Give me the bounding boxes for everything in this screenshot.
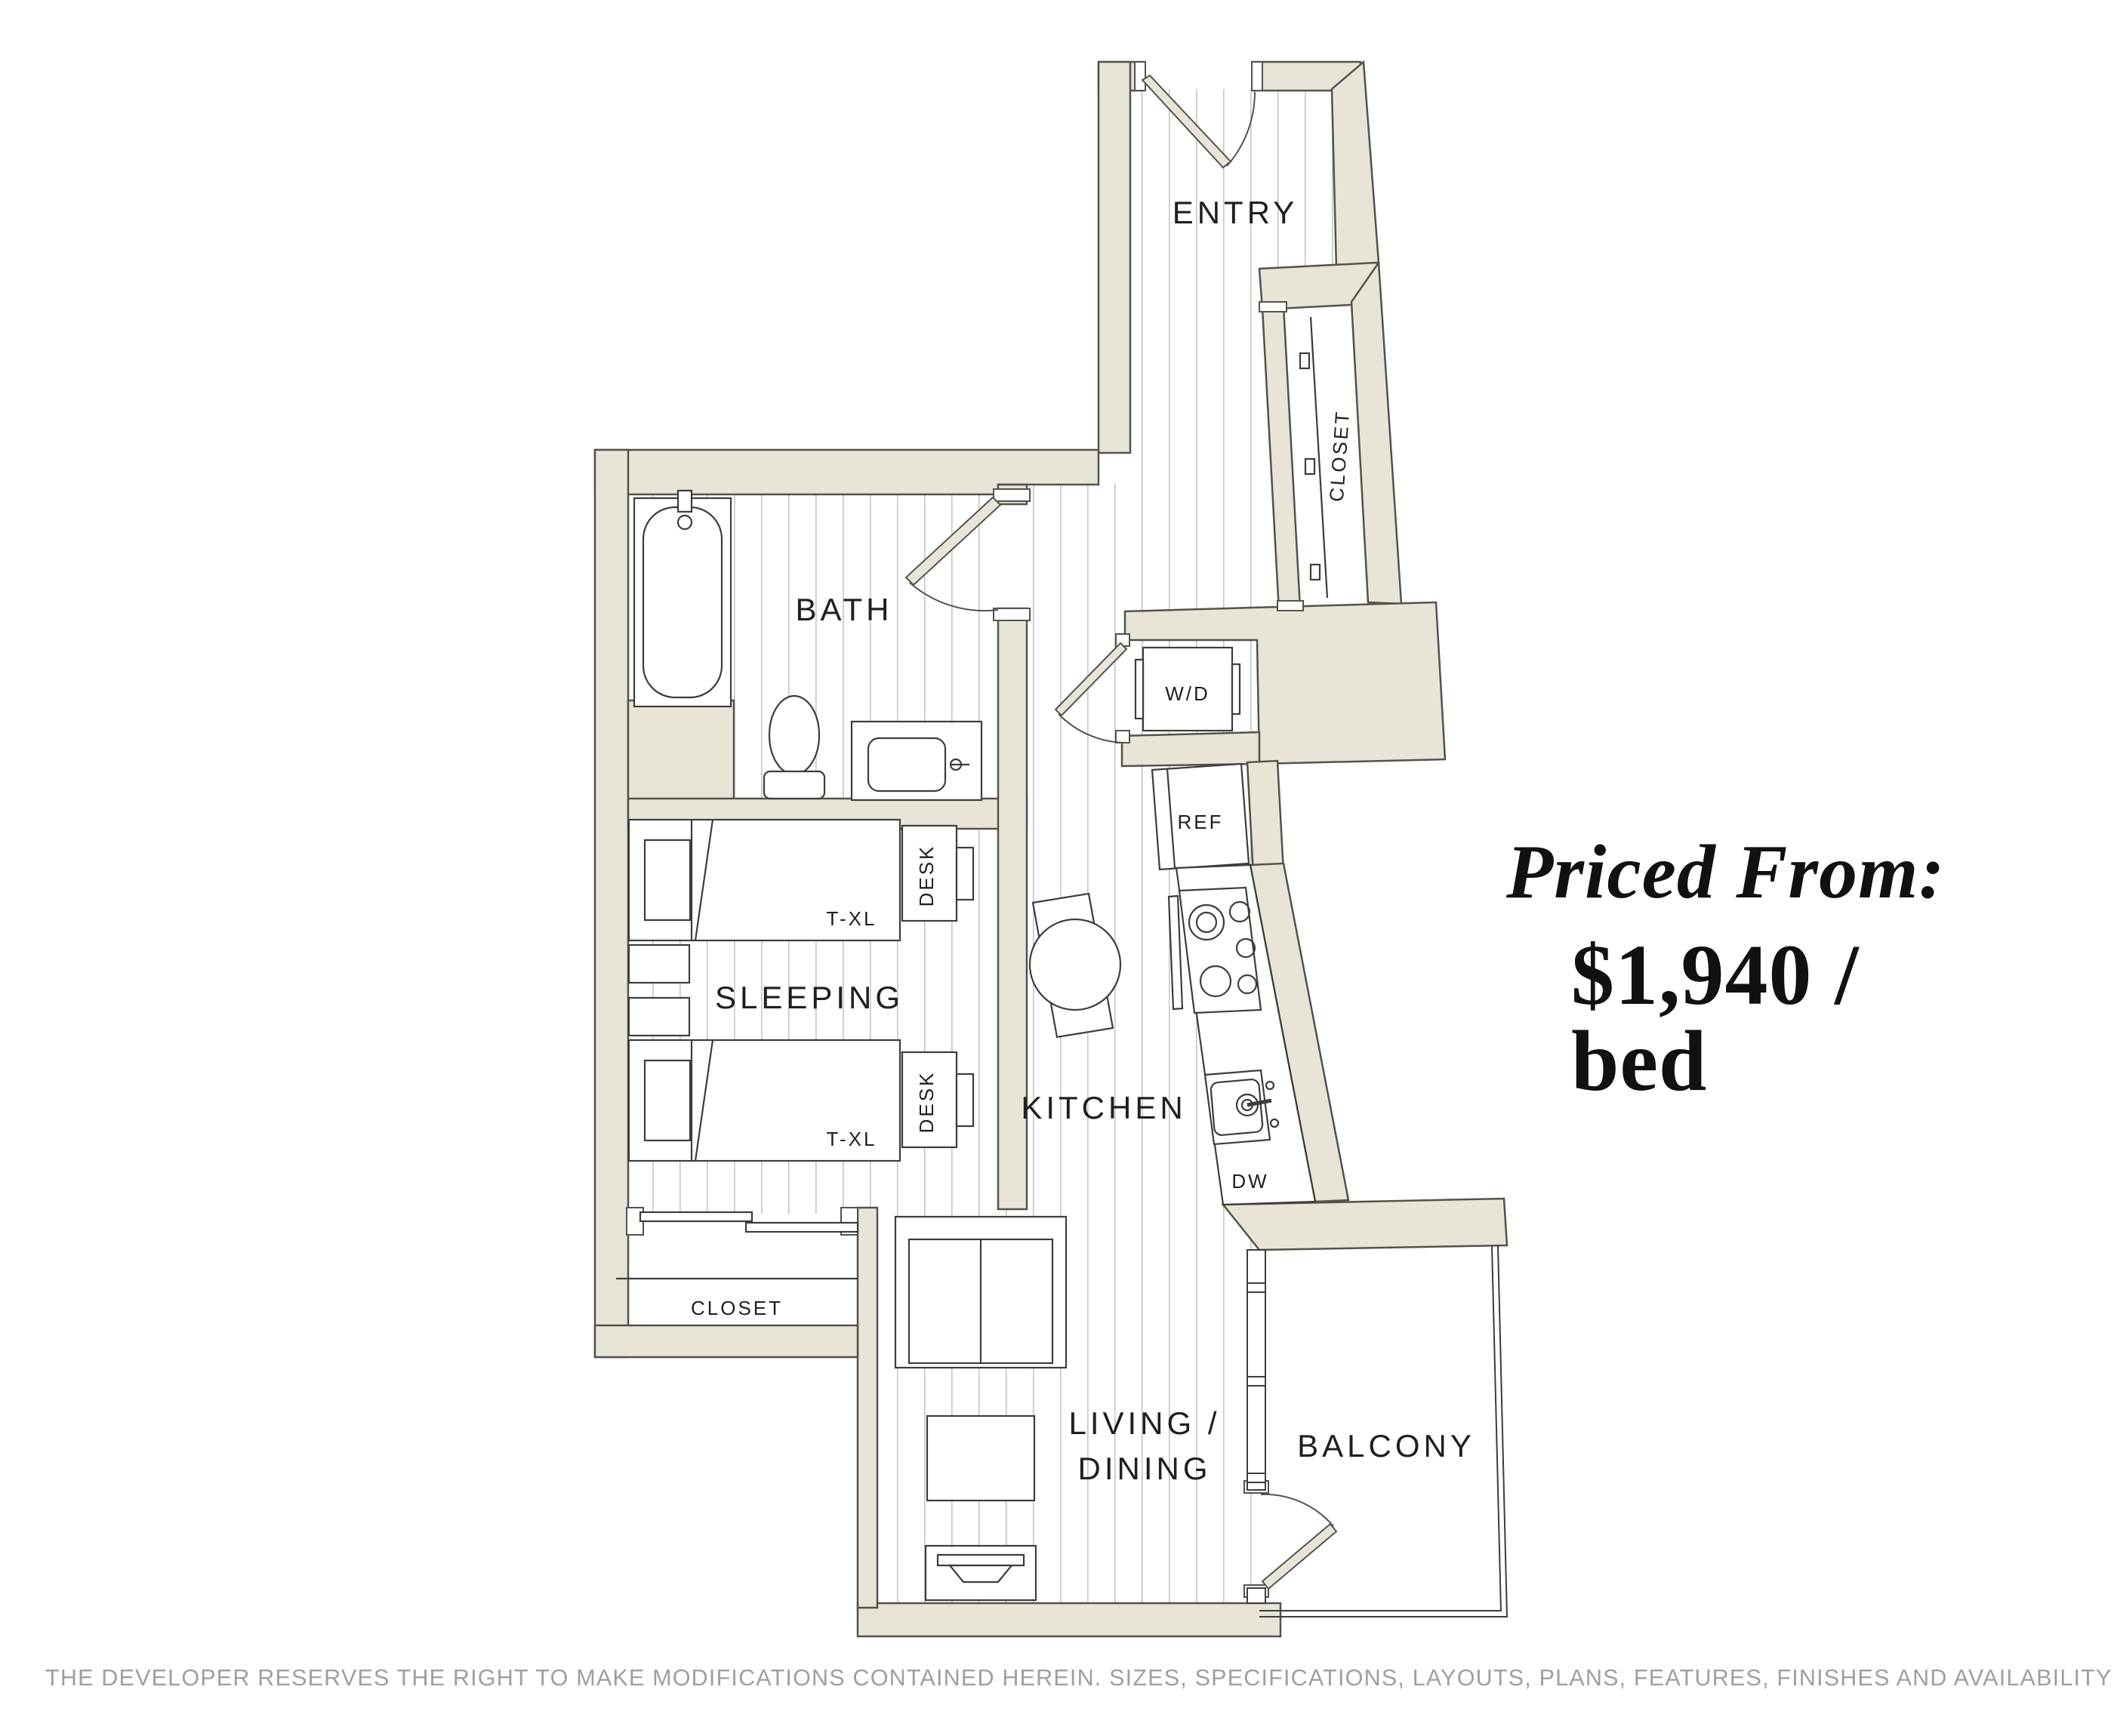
bath-label: BATH (796, 592, 893, 627)
entry-closet-bracket (1311, 565, 1320, 580)
entry-label: ENTRY (1173, 195, 1299, 230)
wall-living-bottom (858, 1603, 1280, 1636)
price-callout: Priced From: $1,940 / bed (1506, 834, 1974, 1104)
price-value: $1,940 / bed (1571, 932, 1974, 1104)
kitchen-label: KITCHEN (1021, 1090, 1186, 1125)
tv-console (926, 1546, 1036, 1600)
sink-knob (1266, 1082, 1274, 1089)
wd-door-jamb-bottom (1116, 731, 1129, 743)
toilet-bowl (769, 696, 819, 774)
sleep-closet-slider-left (640, 1212, 752, 1221)
sleeping-closet-label: CLOSET (691, 1297, 783, 1319)
balcony-window-wall-upper (1247, 1250, 1265, 1490)
bed1-pillow (645, 840, 690, 920)
entry-closet-bracket (1300, 353, 1309, 368)
wall-entry-right-upper (1332, 62, 1379, 269)
tub-drain (678, 516, 692, 529)
desk1-chair (957, 848, 973, 900)
bed2-pillow (645, 1060, 690, 1140)
wd-label: W/D (1165, 682, 1210, 705)
dw-label: DW (1231, 1170, 1268, 1193)
wall-tub-jut (628, 700, 734, 808)
wall-ref-east (1247, 761, 1283, 874)
bath-door-jamb-bottom (994, 608, 1030, 620)
wall-left-outer (595, 450, 628, 1357)
bed2-size-label: T-XL (827, 1128, 877, 1150)
sleeping-label: SLEEPING (715, 980, 904, 1015)
nightstand2 (629, 998, 689, 1036)
tub-faucet (678, 491, 692, 512)
entry-door-jamb-right (1252, 62, 1262, 91)
entry-closet-bracket (1305, 459, 1314, 474)
floorplan-page: ENTRY BATH SLEEPING KITCHEN LIVING / DIN… (0, 0, 2114, 1736)
desk2-chair (957, 1074, 973, 1126)
ref-label: REF (1178, 811, 1224, 833)
desk1-label: DESK (915, 845, 938, 907)
desk2-label: DESK (915, 1071, 938, 1134)
bath-door-jamb-top (994, 489, 1030, 501)
wall-entry-left (1099, 62, 1130, 453)
footer-disclaimer: THE DEVELOPER RESERVES THE RIGHT TO MAKE… (45, 1664, 2068, 1691)
balcony-window-wall-lower (1247, 1588, 1265, 1603)
entry-closet-jamb-bottom (1277, 601, 1303, 611)
wall-wing-bottom (595, 1325, 858, 1357)
living-label-line1: LIVING / (1068, 1405, 1220, 1441)
vanity-sink (868, 738, 945, 791)
washer-dryer-tab-right (1232, 664, 1240, 714)
sleep-closet-slider-right (746, 1223, 858, 1232)
wall-under-wd (1122, 732, 1259, 766)
entry-closet-jamb-top (1259, 302, 1287, 312)
living-label-line2: DINING (1078, 1451, 1212, 1486)
coffee-table (927, 1416, 1034, 1501)
nightstand1 (629, 945, 689, 983)
tv-screen (938, 1555, 1024, 1565)
toilet-tank (764, 771, 824, 799)
entry-door-jamb-left (1135, 62, 1145, 91)
dining-table (1030, 919, 1120, 1010)
bed1-size-label: T-XL (827, 907, 877, 930)
sink-knob (1271, 1119, 1278, 1127)
bathtub (643, 507, 722, 697)
wall-living-west (858, 1208, 877, 1608)
wall-balcony-north (1223, 1199, 1507, 1250)
washer-dryer-tab-left (1136, 660, 1143, 719)
price-heading: Priced From: (1506, 834, 1974, 911)
balcony-label: BALCONY (1297, 1428, 1475, 1464)
